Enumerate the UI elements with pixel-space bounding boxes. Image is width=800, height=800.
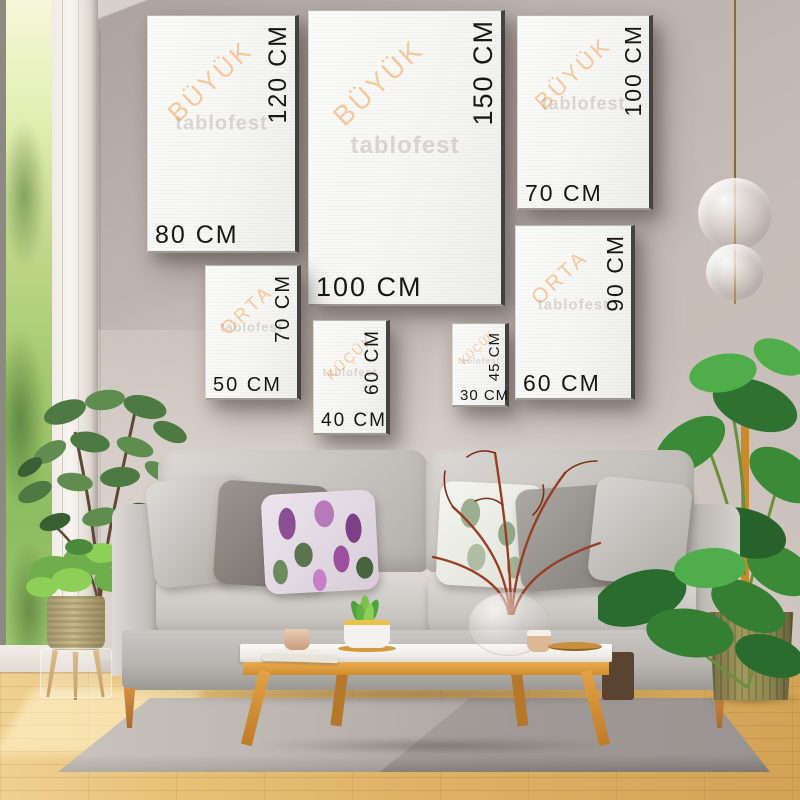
pendant-glass-globe <box>706 244 764 300</box>
width-dimension-label: 30 CM <box>460 387 509 404</box>
width-dimension-label: 70 CM <box>525 180 603 207</box>
height-dimension-label: 150 CM <box>468 19 499 126</box>
width-dimension-label: 60 CM <box>523 370 601 397</box>
pendant-glass-globe <box>698 178 772 250</box>
canvas-frame-50x70: ORTA 70 CM 50 CM tablofest <box>205 265 301 400</box>
window-frame-seam <box>62 0 63 688</box>
watermark: tablofest <box>220 319 283 334</box>
living-room-canvas-size-guide: BÜYÜK 120 CM 80 CM tablofest BÜYÜK 150 C… <box>0 0 800 800</box>
canvas-frame-30x45: KÜÇÜK 45 CM 30 CM tablofest <box>452 323 509 407</box>
wooden-tray <box>548 642 602 651</box>
watermark: tablofest <box>538 297 610 314</box>
succulent-pot <box>344 620 390 648</box>
canvas-frame-70x100: BÜYÜK 100 CM 70 CM tablofest <box>517 15 653 210</box>
monstera-planter-pot <box>706 612 796 700</box>
watermark: tablofest <box>323 367 378 379</box>
pendant-cord <box>734 0 736 185</box>
table-shadow <box>255 738 615 754</box>
watermark: tablofest <box>175 113 267 136</box>
canvas-frame-100x150: BÜYÜK 150 CM 100 CM tablofest <box>308 10 505 306</box>
wicker-planter-basket <box>47 596 105 650</box>
canvas-frame-60x90: ORTA 90 CM 60 CM tablofest <box>515 225 635 400</box>
window-frame <box>52 0 98 688</box>
tea-cup <box>527 630 551 652</box>
height-dimension-label: 60 CM <box>362 329 384 395</box>
coffee-table-wood-rim <box>243 662 609 675</box>
canvas-frame-40x60: KÜÇÜK 60 CM 40 CM tablofest <box>313 320 390 435</box>
acrylic-stool <box>40 648 112 698</box>
sofa-leg <box>122 688 137 728</box>
width-dimension-label: 40 CM <box>321 410 387 432</box>
height-dimension-label: 120 CM <box>264 24 293 124</box>
canvas-frame-80x120: BÜYÜK 120 CM 80 CM tablofest <box>147 15 299 253</box>
coffee-cup <box>284 629 310 650</box>
throw-pillow-purple-floral <box>260 489 379 595</box>
width-dimension-label: 100 CM <box>316 272 423 303</box>
watermark: tablofest <box>350 132 459 160</box>
watermark: tablofest <box>458 357 500 366</box>
window-edge <box>0 0 6 688</box>
width-dimension-label: 80 CM <box>155 221 239 250</box>
throw-pillow-light <box>587 475 693 588</box>
window-frame-seam <box>78 0 79 688</box>
width-dimension-label: 50 CM <box>213 374 282 397</box>
watermark: tablofest <box>541 94 625 115</box>
outdoor-foliage <box>2 120 46 270</box>
size-category-label: BÜYÜK <box>327 33 430 132</box>
